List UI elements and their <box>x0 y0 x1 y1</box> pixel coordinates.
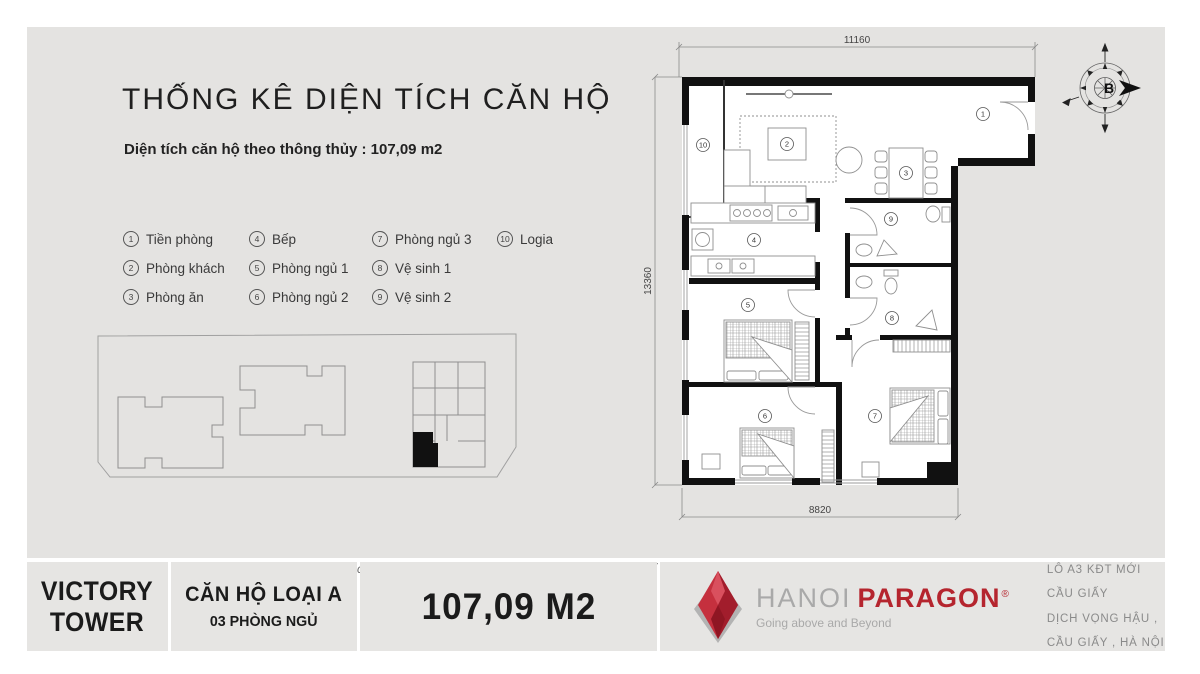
legend-label: Phòng ngủ 2 <box>272 290 349 305</box>
svg-text:6: 6 <box>763 412 767 421</box>
legend-label: Phòng ăn <box>146 290 204 305</box>
legend-label: Vệ sinh 1 <box>395 261 451 276</box>
page-title: THỐNG KÊ DIỆN TÍCH CĂN HỘ <box>122 83 611 117</box>
room-legend: 1Tiền phòng 2Phòng khách 3Phòng ăn 4Bếp … <box>123 231 587 305</box>
registered-mark: ® <box>1002 589 1009 600</box>
legend-num: 10 <box>497 231 513 247</box>
svg-text:3: 3 <box>904 169 908 178</box>
legend-label: Phòng khách <box>146 261 225 276</box>
floor-plan-drawing: 11160 13360 8820 1 2 3 4 5 6 7 8 9 10 <box>640 30 1160 530</box>
legend-item: 4Bếp <box>249 231 372 247</box>
svg-text:4: 4 <box>752 236 756 245</box>
dim-top-label: 11160 <box>844 35 871 46</box>
dim-left-label: 13360 <box>643 267 654 295</box>
room-marker-9: 9 <box>885 213 898 226</box>
address-line1: LÔ A3 KĐT MỚI CẦU GIẤY <box>1047 558 1165 606</box>
room-marker-3: 3 <box>900 167 913 180</box>
legend-item: 8Vệ sinh 1 <box>372 260 497 276</box>
room-marker-10: 10 <box>697 139 710 152</box>
building-name-line1: VICTORY <box>41 576 153 606</box>
svg-text:2: 2 <box>785 140 789 149</box>
legend-item: 9Vệ sinh 2 <box>372 289 497 305</box>
brand-address: LÔ A3 KĐT MỚI CẦU GIẤY DỊCH VỌNG HẬU , C… <box>1047 558 1165 655</box>
unit-type-label: CĂN HỘ LOẠI A <box>185 583 342 607</box>
legend-label: Phòng ngủ 3 <box>395 232 472 247</box>
diamond-logo-icon <box>690 571 746 643</box>
footer-brand: HANOI PARAGON ® Going above and Beyond L… <box>660 562 1165 651</box>
legend-label: Tiền phòng <box>146 232 213 247</box>
legend-item: 1Tiền phòng <box>123 231 249 247</box>
room-marker-4: 4 <box>748 234 761 247</box>
legend-num: 1 <box>123 231 139 247</box>
room-marker-7: 7 <box>869 410 882 423</box>
footer-area: 107,09 M2 <box>360 562 657 651</box>
svg-text:10: 10 <box>699 141 707 150</box>
brand-name-red: PARAGON <box>858 583 1001 614</box>
legend-num: 3 <box>123 289 139 305</box>
footer-unit-type: CĂN HỘ LOẠI A 03 PHÒNG NGỦ <box>171 562 357 651</box>
svg-text:7: 7 <box>873 412 877 421</box>
compass-icon: B <box>1063 44 1141 132</box>
svg-text:5: 5 <box>746 301 750 310</box>
legend-num: 7 <box>372 231 388 247</box>
svg-text:1: 1 <box>981 110 985 119</box>
legend-item: 10Logia <box>497 231 587 247</box>
brand-tagline: Going above and Beyond <box>756 616 1009 630</box>
legend-num: 6 <box>249 289 265 305</box>
building-footprint-2 <box>240 366 345 435</box>
svg-text:8: 8 <box>890 314 894 323</box>
room-marker-2: 2 <box>781 138 794 151</box>
brand-logo: HANOI PARAGON ® Going above and Beyond <box>690 571 1009 643</box>
svg-text:9: 9 <box>889 215 893 224</box>
legend-label: Phòng ngủ 1 <box>272 261 349 276</box>
room-marker-1: 1 <box>977 108 990 121</box>
room-marker-5: 5 <box>742 299 755 312</box>
legend-label: Bếp <box>272 232 296 247</box>
footer-building-name: VICTORY TOWER <box>27 562 168 651</box>
room-marker-8: 8 <box>886 312 899 325</box>
legend-item: 5Phòng ngủ 1 <box>249 260 372 276</box>
compass-north-label: B <box>1104 80 1114 96</box>
legend-num: 5 <box>249 260 265 276</box>
legend-num: 8 <box>372 260 388 276</box>
brand-name-gray: HANOI <box>756 583 852 614</box>
legend-num: 4 <box>249 231 265 247</box>
unit-bedrooms-label: 03 PHÒNG NGỦ <box>210 613 318 630</box>
legend-label: Vệ sinh 2 <box>395 290 451 305</box>
room-marker-6: 6 <box>759 410 772 423</box>
building-footprint-1 <box>118 397 223 468</box>
legend-item: 2Phòng khách <box>123 260 249 276</box>
site-key-plan <box>95 333 520 483</box>
legend-item: 6Phòng ngủ 2 <box>249 289 372 305</box>
legend-num: 2 <box>123 260 139 276</box>
building-name-line2: TOWER <box>50 607 144 637</box>
address-line2: DỊCH VỌNG HẬU , CẦU GIẤY , HÀ NỘI <box>1047 607 1165 655</box>
page-subtitle: Diện tích căn hộ theo thông thủy : 107,0… <box>124 141 442 158</box>
legend-item: 3Phòng ăn <box>123 289 249 305</box>
legend-label: Logia <box>520 232 553 247</box>
legend-item: 7Phòng ngủ 3 <box>372 231 497 247</box>
legend-num: 9 <box>372 289 388 305</box>
dim-bottom-label: 8820 <box>809 505 832 516</box>
area-value: 107,09 M2 <box>421 586 596 628</box>
